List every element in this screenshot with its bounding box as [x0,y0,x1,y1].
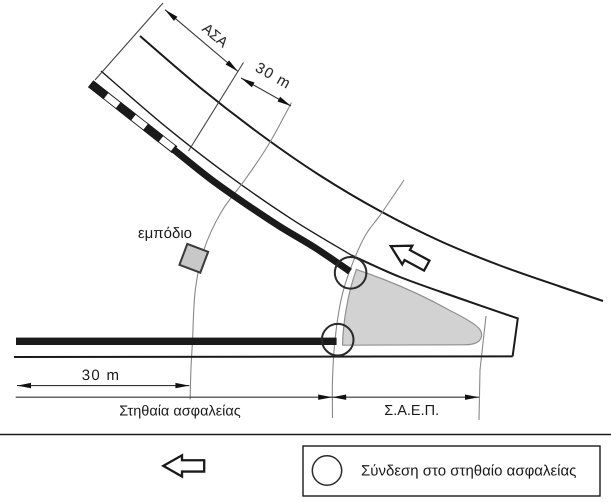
svg-text:Σύνδεση στο στηθαίο ασφαλείας: Σύνδεση στο στηθαίο ασφαλείας [361,463,576,480]
svg-text:Στηθαία ασφαλείας: Στηθαία ασφαλείας [119,404,241,420]
svg-text:30 m: 30 m [82,367,121,384]
svg-text:εμπόδιο: εμπόδιο [138,225,192,242]
svg-text:ΑΣΑ: ΑΣΑ [199,21,231,52]
svg-text:Σ.Α.Ε.Π.: Σ.Α.Ε.Π. [384,403,439,419]
